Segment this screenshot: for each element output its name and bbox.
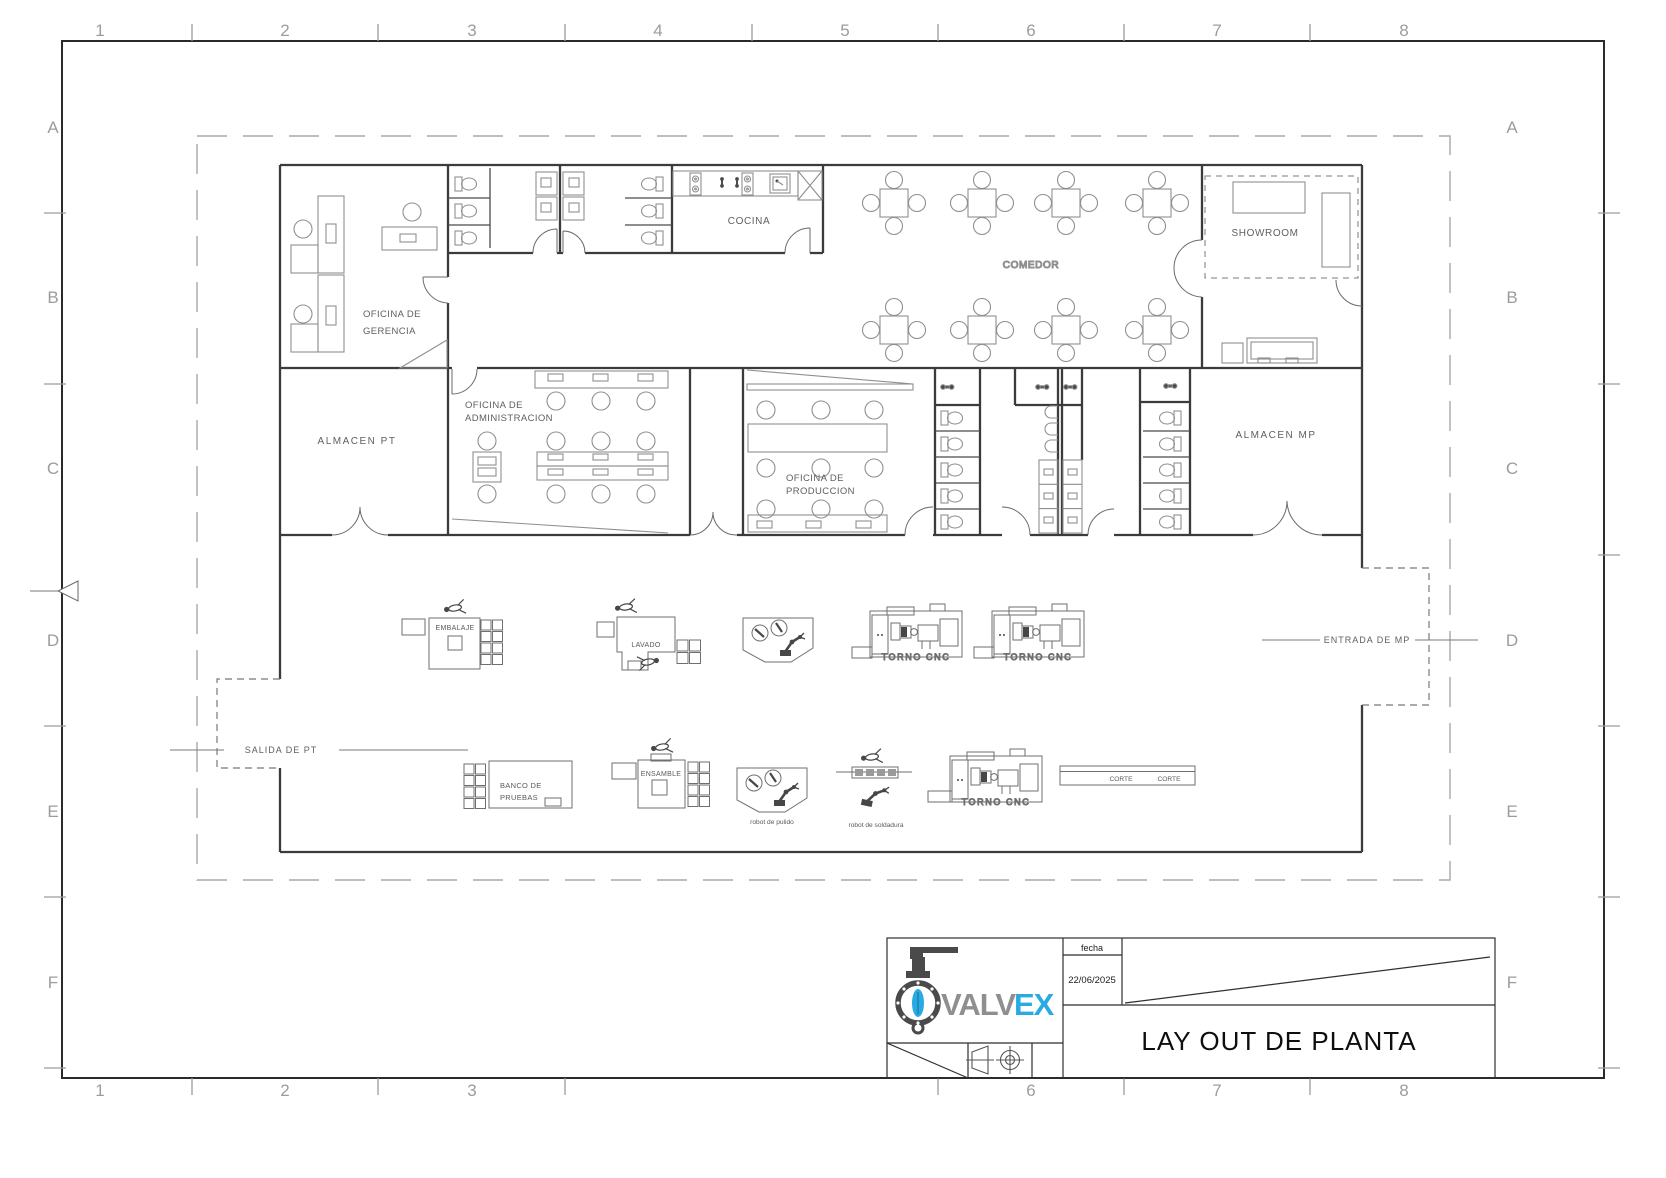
grid-label: 1 [95, 21, 104, 40]
grid-label: 4 [653, 21, 662, 40]
grid-label: F [48, 973, 58, 992]
station-label-corte: CORTE [1110, 776, 1134, 783]
robot-cell-soldadura: robot de soldadura [836, 749, 912, 829]
date-label: fecha [1081, 943, 1103, 953]
station-corte: CORTE CORTE [1060, 766, 1195, 785]
sheet-border [62, 41, 1604, 1078]
grid-label: 7 [1212, 21, 1221, 40]
grid-label: D [1506, 631, 1518, 650]
grid-label: E [47, 802, 58, 821]
grid-label: 1 [95, 1081, 104, 1100]
room-administracion: OFICINA DE ADMINISTRACION [452, 371, 668, 533]
logo-text-valv: VALV [941, 987, 1016, 1022]
machine-torno-cnc-3: TORNO CNC [928, 749, 1042, 807]
room-comedor: COMEDOR [863, 172, 1189, 362]
machine-torno-cnc-2: TORNO CNC [974, 604, 1084, 662]
grid-label: 8 [1399, 1081, 1408, 1100]
grid-label: C [47, 459, 59, 478]
grid-column-labels-bottom: 1 2 3 6 7 8 [95, 1081, 1408, 1100]
grid-label: 7 [1212, 1081, 1221, 1100]
robot-cell-pulido: robot de pulido [737, 768, 807, 826]
drawing-title: LAY OUT DE PLANTA [1141, 1026, 1416, 1056]
machine-label-torno-cnc: TORNO CNC [882, 652, 951, 662]
room-label-administracion: OFICINA DE [465, 400, 523, 411]
grid-label: 2 [280, 21, 289, 40]
station-label-corte: CORTE [1158, 776, 1182, 783]
section-arrow-icon [30, 581, 78, 601]
label-robot-soldadura: robot de soldadura [849, 822, 904, 829]
date-value: 22/06/2025 [1068, 975, 1116, 986]
station-embalaje: EMBALAJE [402, 599, 503, 669]
machine-label-torno-cnc: TORNO CNC [962, 797, 1031, 807]
room-label-gerencia: GERENCIA [363, 326, 416, 337]
room-almacen-mp: ALMACEN MP [1235, 430, 1316, 441]
room-label-comedor: COMEDOR [1003, 260, 1059, 271]
station-label-embalaje: EMBALAJE [436, 625, 475, 632]
grid-label: A [47, 118, 59, 137]
grid-row-labels-right: A B C D E F [1506, 118, 1518, 992]
floor-plan-svg: 1 2 3 4 5 6 7 8 1 2 3 6 7 8 A B C D E F … [0, 0, 1666, 1178]
room-cocina: COCINA [673, 171, 822, 227]
station-label-banco: BANCO DE [500, 781, 542, 790]
room-label-administracion: ADMINISTRACION [465, 413, 553, 424]
flow-salida-pt: SALIDA DE PT [170, 745, 468, 755]
room-almacen-pt: ALMACEN PT [318, 436, 397, 447]
label-robot-pulido: robot de pulido [750, 819, 794, 826]
grid-label: B [1506, 288, 1517, 307]
station-label-lavado: LAVADO [631, 642, 660, 649]
flow-entrada-mp: ENTRADA DE MP [1262, 635, 1478, 645]
room-label-gerencia: OFICINA DE [363, 309, 421, 320]
room-showroom: SHOWROOM [1205, 176, 1358, 363]
grid-label: 8 [1399, 21, 1408, 40]
grid-label: 6 [1026, 1081, 1035, 1100]
projection-symbol-icon [966, 1046, 1024, 1074]
station-ensamble: ENSAMBLE [612, 738, 710, 808]
grid-label: E [1506, 802, 1517, 821]
grid-label: A [1506, 118, 1518, 137]
grid-label: C [1506, 459, 1518, 478]
grid-label: D [47, 631, 59, 650]
room-label-produccion: OFICINA DE [786, 473, 844, 484]
station-label-ensamble: ENSAMBLE [641, 771, 682, 778]
drawing-sheet: 1 2 3 4 5 6 7 8 1 2 3 6 7 8 A B C D E F … [0, 0, 1666, 1178]
flow-label-entrada: ENTRADA DE MP [1324, 635, 1411, 645]
robot-cell-1 [743, 618, 813, 662]
room-label-cocina: COCINA [728, 216, 771, 227]
building-outer-walls [280, 165, 1362, 852]
grid-label: 6 [1026, 21, 1035, 40]
grid-row-labels-left: A B C D E F [47, 118, 59, 992]
grid-label: F [1507, 973, 1517, 992]
station-banco-de-pruebas: BANCO DE PRUEBAS [464, 761, 572, 809]
room-produccion: OFICINA DE PRODUCCION [747, 370, 913, 532]
grid-label: 5 [840, 21, 849, 40]
logo-text-ex: EX [1014, 987, 1055, 1022]
room-label-almacen-pt: ALMACEN PT [318, 436, 397, 447]
machine-torno-cnc-1: TORNO CNC [852, 604, 962, 662]
room-label-produccion: PRODUCCION [786, 486, 855, 497]
grid-label: 3 [467, 1081, 476, 1100]
grid-label: 3 [467, 21, 476, 40]
station-lavado: LAVADO [597, 599, 701, 671]
room-label-showroom: SHOWROOM [1231, 228, 1298, 239]
title-block: VALV EX fecha 22/06/2025 LAY OUT DE PLAN… [887, 938, 1495, 1078]
grid-label: 2 [280, 1081, 289, 1100]
machine-label-torno-cnc: TORNO CNC [1004, 652, 1073, 662]
station-label-banco: PRUEBAS [500, 793, 538, 802]
grid-label: B [47, 288, 58, 307]
room-label-almacen-mp: ALMACEN MP [1235, 430, 1316, 441]
flow-label-salida: SALIDA DE PT [245, 745, 318, 755]
